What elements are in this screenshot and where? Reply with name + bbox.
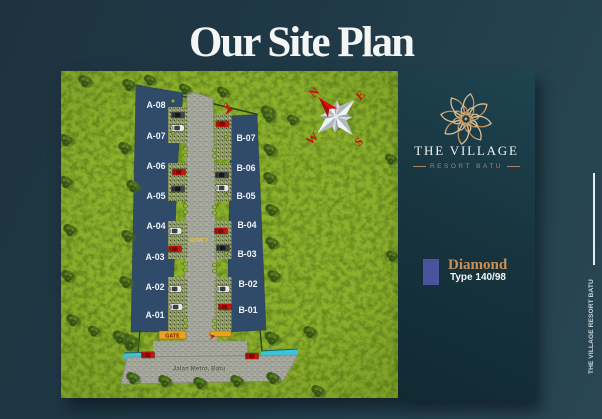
svg-text:A-05: A-05 xyxy=(146,191,165,201)
svg-text:A-04: A-04 xyxy=(146,221,165,231)
svg-text:B-07: B-07 xyxy=(236,133,255,143)
svg-text:GATE: GATE xyxy=(165,333,180,339)
svg-text:A-06: A-06 xyxy=(146,161,165,171)
svg-text:B-06: B-06 xyxy=(236,163,255,173)
svg-text:ROW 7: ROW 7 xyxy=(190,238,208,244)
svg-text:B-01: B-01 xyxy=(238,305,257,315)
svg-text:B-03: B-03 xyxy=(237,249,256,259)
svg-text:A-03: A-03 xyxy=(145,252,164,262)
svg-text:A-02: A-02 xyxy=(145,282,164,292)
svg-text:B-05: B-05 xyxy=(236,191,255,201)
svg-text:B-04: B-04 xyxy=(237,220,256,230)
svg-text:A-08: A-08 xyxy=(146,100,165,110)
svg-text:B-02: B-02 xyxy=(238,279,257,289)
svg-text:Jalan Metro, Batu: Jalan Metro, Batu xyxy=(173,366,226,373)
svg-text:A-01: A-01 xyxy=(145,310,164,320)
svg-text:A-07: A-07 xyxy=(146,131,165,141)
